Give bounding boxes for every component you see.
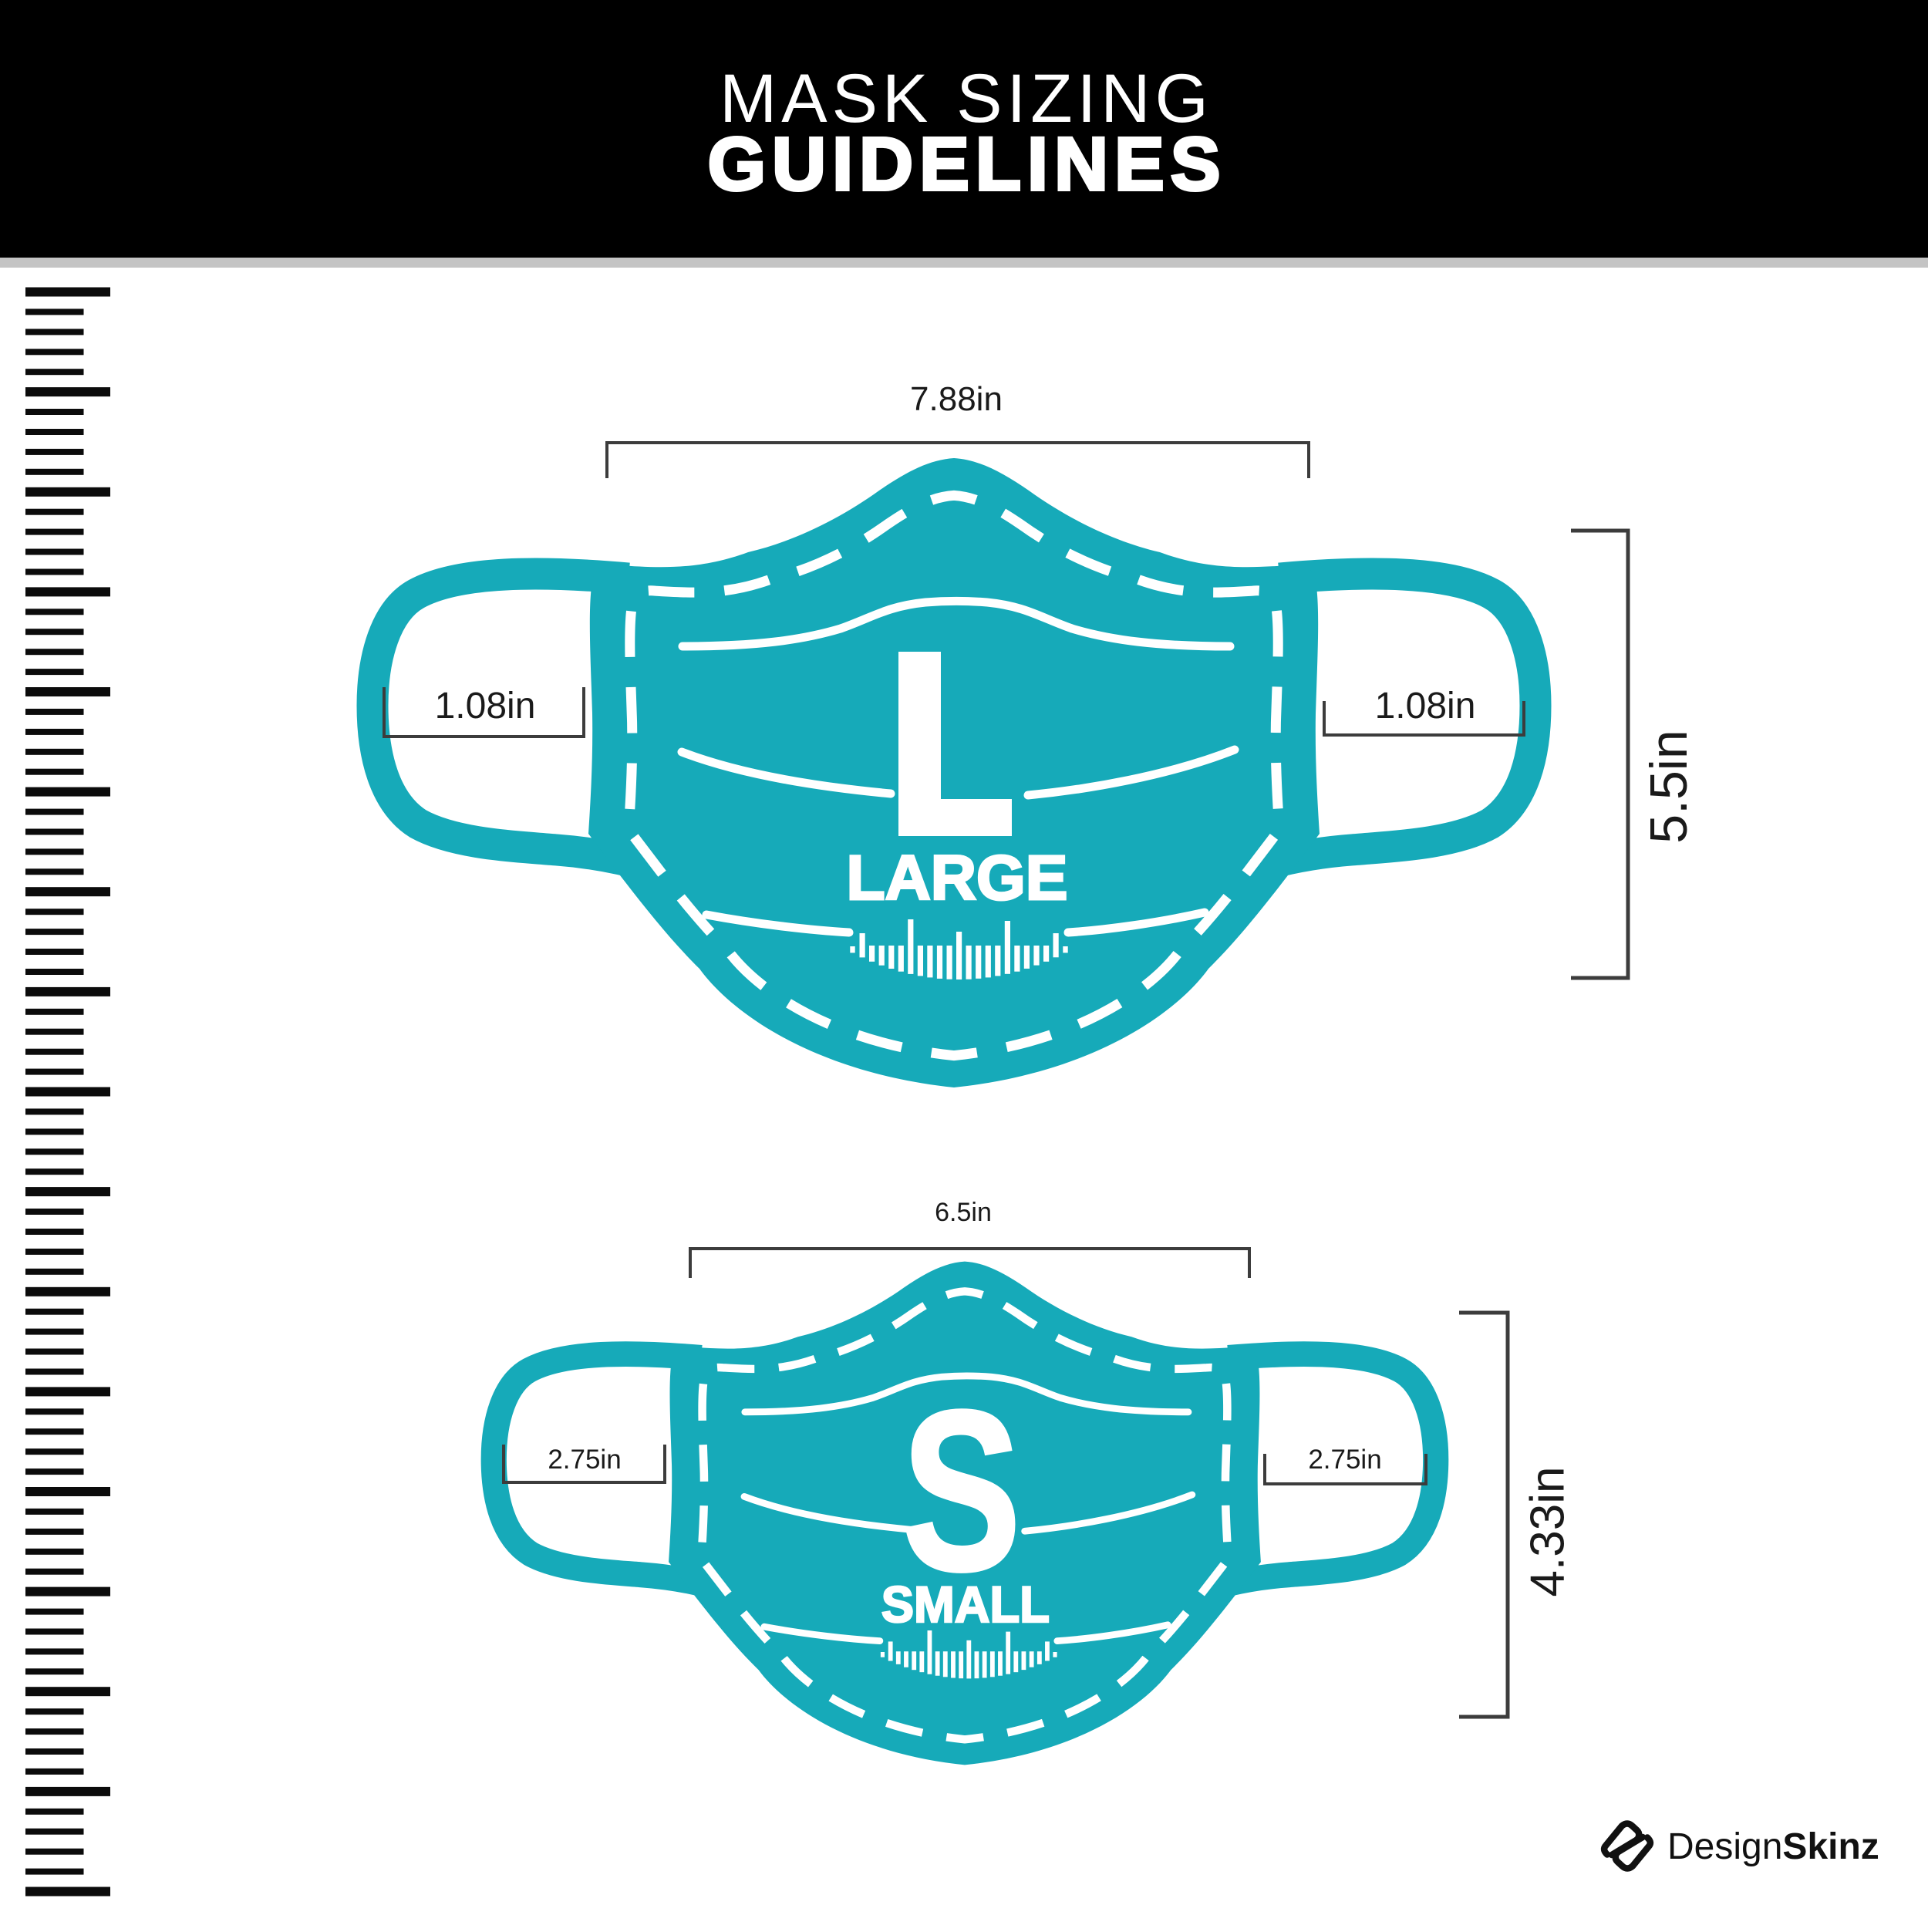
svg-text:LARGE: LARGE [847,843,1068,913]
svg-text:GUIDELINES: GUIDELINES [708,122,1227,206]
svg-text:2.75in: 2.75in [548,1445,621,1475]
svg-text:7.88in: 7.88in [910,380,1003,418]
svg-text:5.5in: 5.5in [1640,730,1698,843]
svg-text:6.5in: 6.5in [935,1198,992,1227]
svg-text:4.33in: 4.33in [1522,1467,1575,1597]
svg-text:SMALL: SMALL [881,1576,1050,1633]
svg-text:2.75in: 2.75in [1308,1445,1381,1475]
svg-text:DesignSkinz: DesignSkinz [1667,1826,1879,1867]
svg-text:1.08in: 1.08in [1375,686,1476,727]
svg-text:1.08in: 1.08in [435,686,536,727]
